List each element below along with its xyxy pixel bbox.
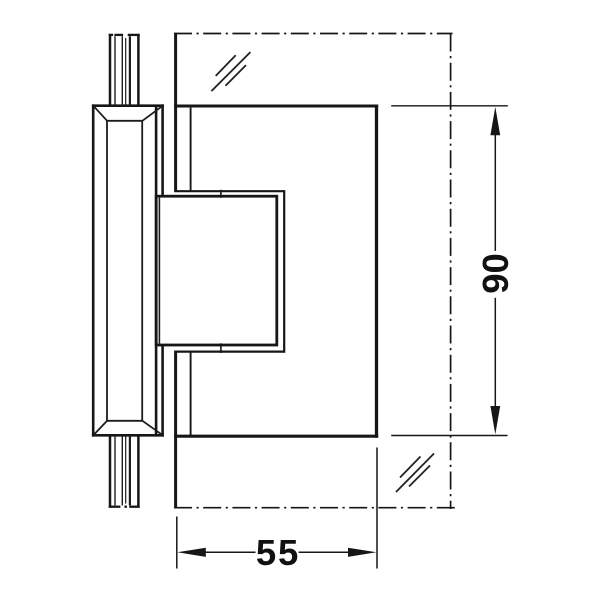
svg-text:55: 55 [256, 532, 300, 573]
svg-text:90: 90 [475, 253, 516, 294]
